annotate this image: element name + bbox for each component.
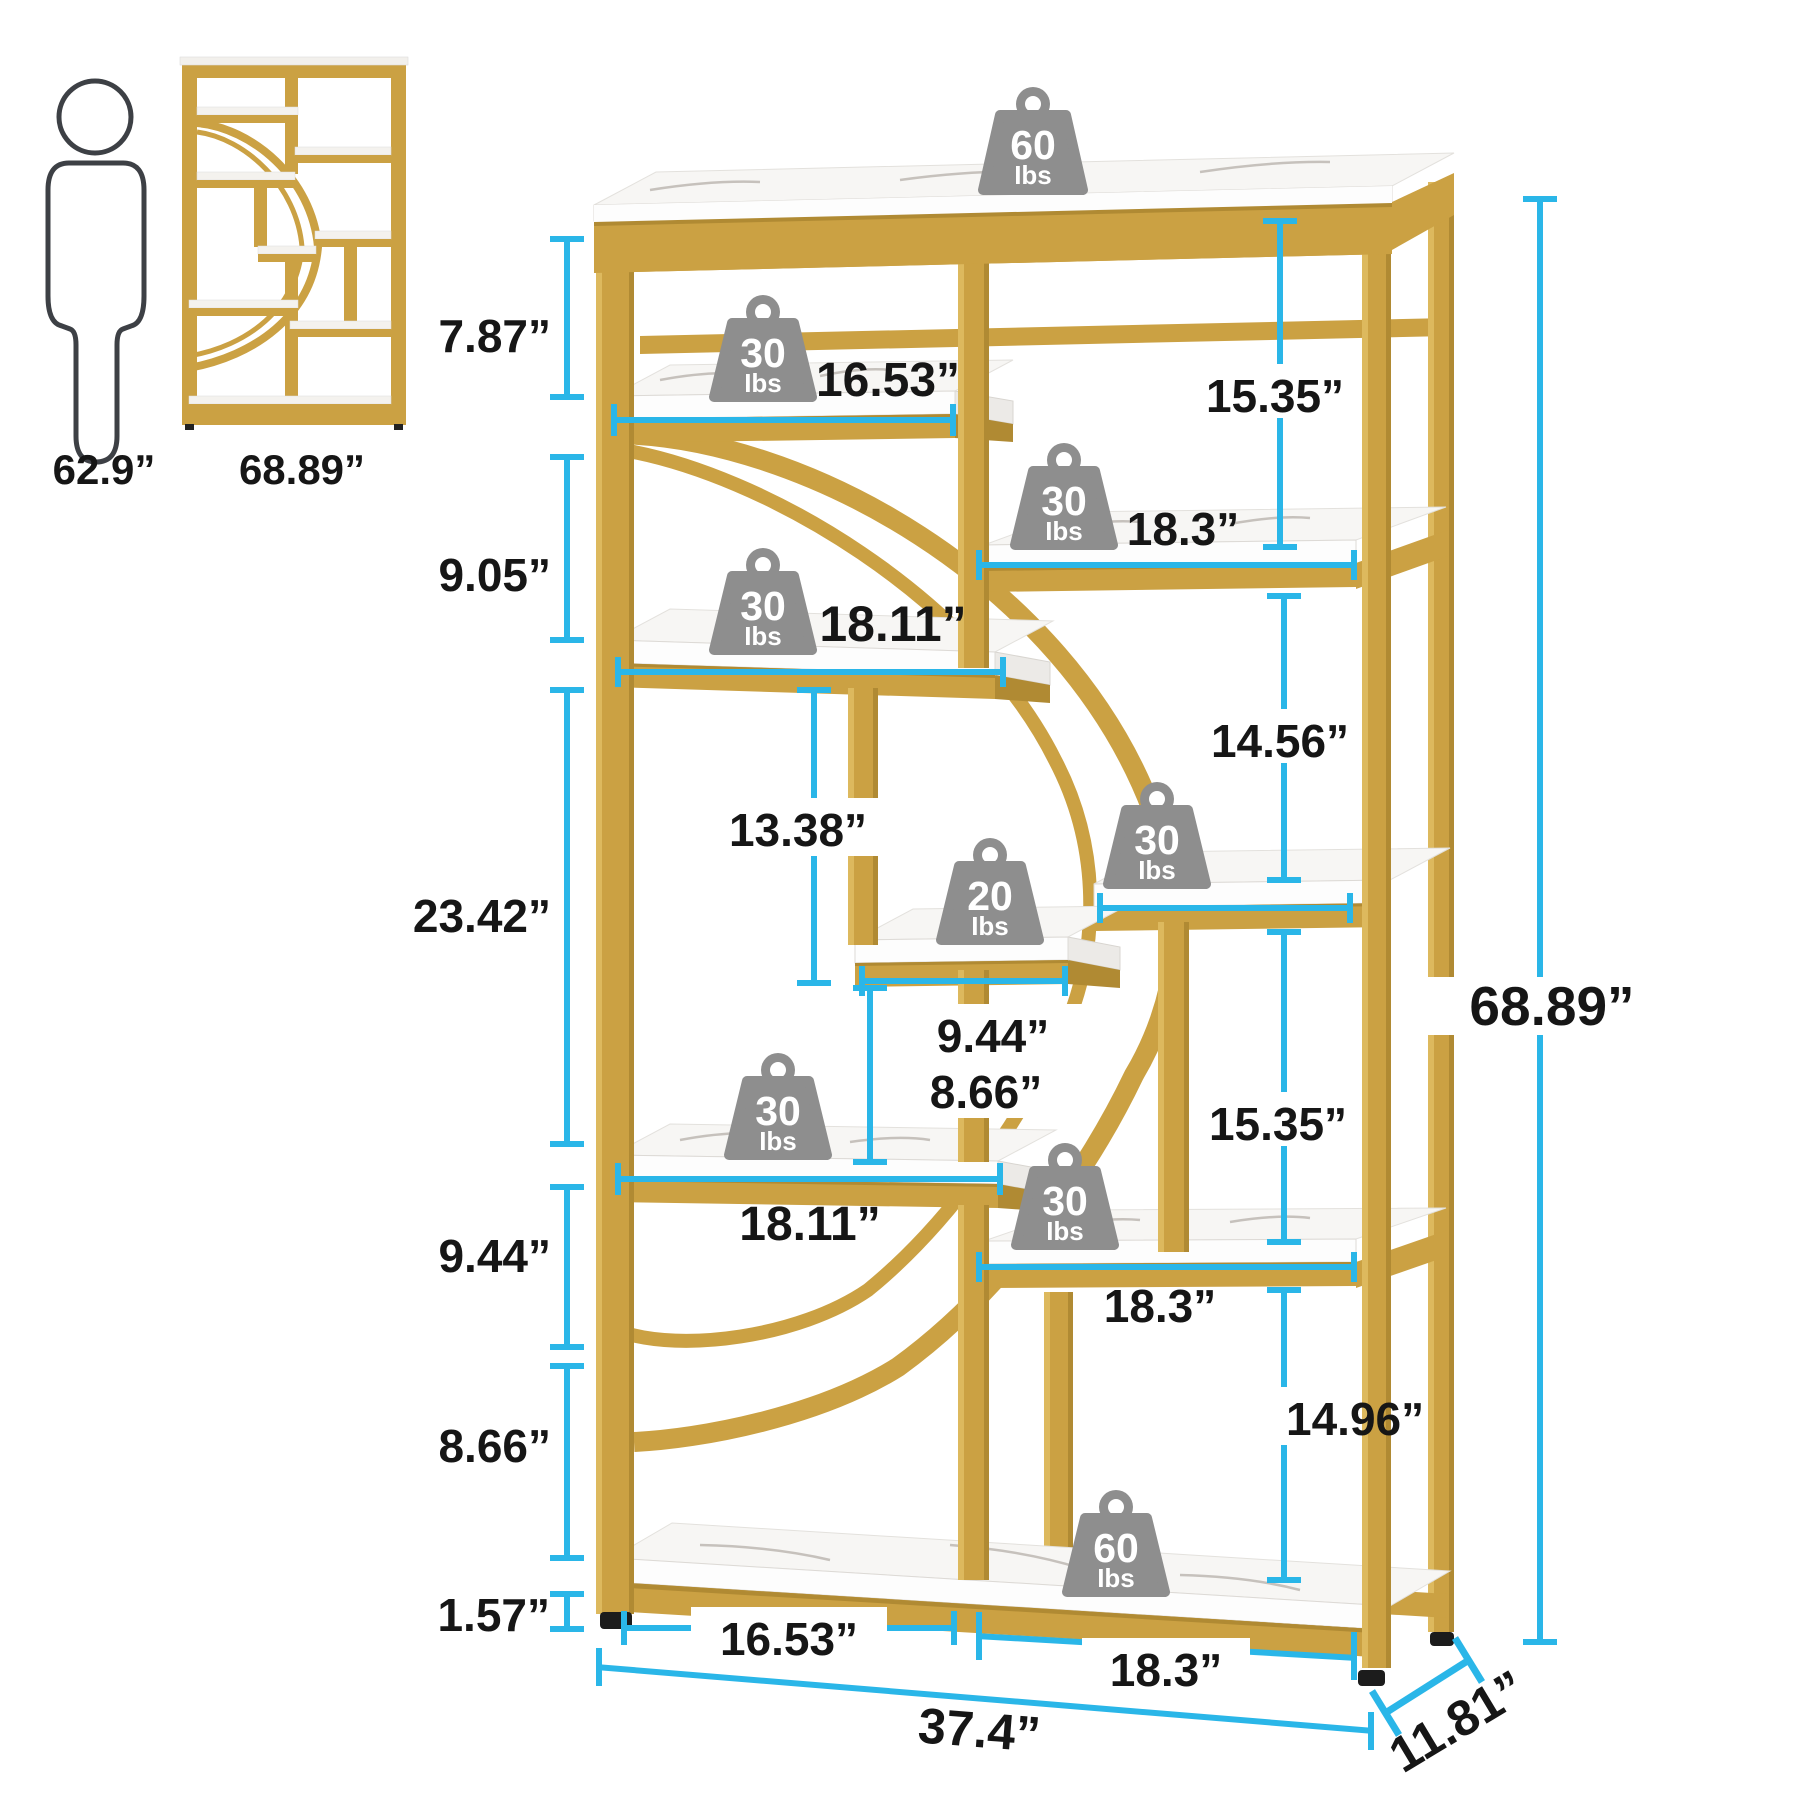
- svg-text:14.96”: 14.96”: [1286, 1393, 1424, 1445]
- svg-text:23.42”: 23.42”: [413, 890, 551, 942]
- svg-text:Ibs: Ibs: [744, 368, 782, 398]
- svg-text:18.11”: 18.11”: [739, 1198, 880, 1251]
- svg-text:16.53”: 16.53”: [720, 1613, 858, 1665]
- svg-text:9.05”: 9.05”: [438, 549, 551, 601]
- svg-text:Ibs: Ibs: [744, 621, 782, 651]
- svg-text:Ibs: Ibs: [1097, 1563, 1135, 1593]
- svg-text:9.44”: 9.44”: [937, 1010, 1050, 1062]
- svg-text:Ibs: Ibs: [1046, 1216, 1084, 1246]
- svg-text:15.35”: 15.35”: [1209, 1098, 1347, 1150]
- svg-text:18.11”: 18.11”: [819, 596, 966, 652]
- svg-text:18.3”: 18.3”: [1110, 1644, 1223, 1696]
- svg-text:8.66”: 8.66”: [930, 1066, 1043, 1118]
- svg-text:Ibs: Ibs: [971, 911, 1009, 941]
- svg-text:14.56”: 14.56”: [1211, 715, 1349, 767]
- svg-text:9.44”: 9.44”: [438, 1230, 551, 1282]
- svg-text:68.89”: 68.89”: [239, 446, 365, 493]
- svg-text:Ibs: Ibs: [1045, 516, 1083, 546]
- svg-text:Ibs: Ibs: [1014, 160, 1052, 190]
- svg-text:18.3”: 18.3”: [1104, 1280, 1217, 1332]
- svg-text:68.89”: 68.89”: [1469, 975, 1634, 1037]
- svg-text:8.66”: 8.66”: [438, 1420, 551, 1472]
- svg-text:1.57”: 1.57”: [437, 1589, 550, 1641]
- svg-text:13.38”: 13.38”: [729, 804, 867, 856]
- svg-text:62.9”: 62.9”: [53, 446, 156, 493]
- svg-text:16.53”: 16.53”: [816, 354, 960, 407]
- svg-text:7.87”: 7.87”: [438, 310, 551, 362]
- svg-text:15.35”: 15.35”: [1206, 370, 1344, 422]
- svg-text:37.4”: 37.4”: [916, 1697, 1042, 1762]
- svg-text:Ibs: Ibs: [759, 1126, 797, 1156]
- svg-text:Ibs: Ibs: [1138, 855, 1176, 885]
- svg-text:18.3”: 18.3”: [1127, 503, 1240, 555]
